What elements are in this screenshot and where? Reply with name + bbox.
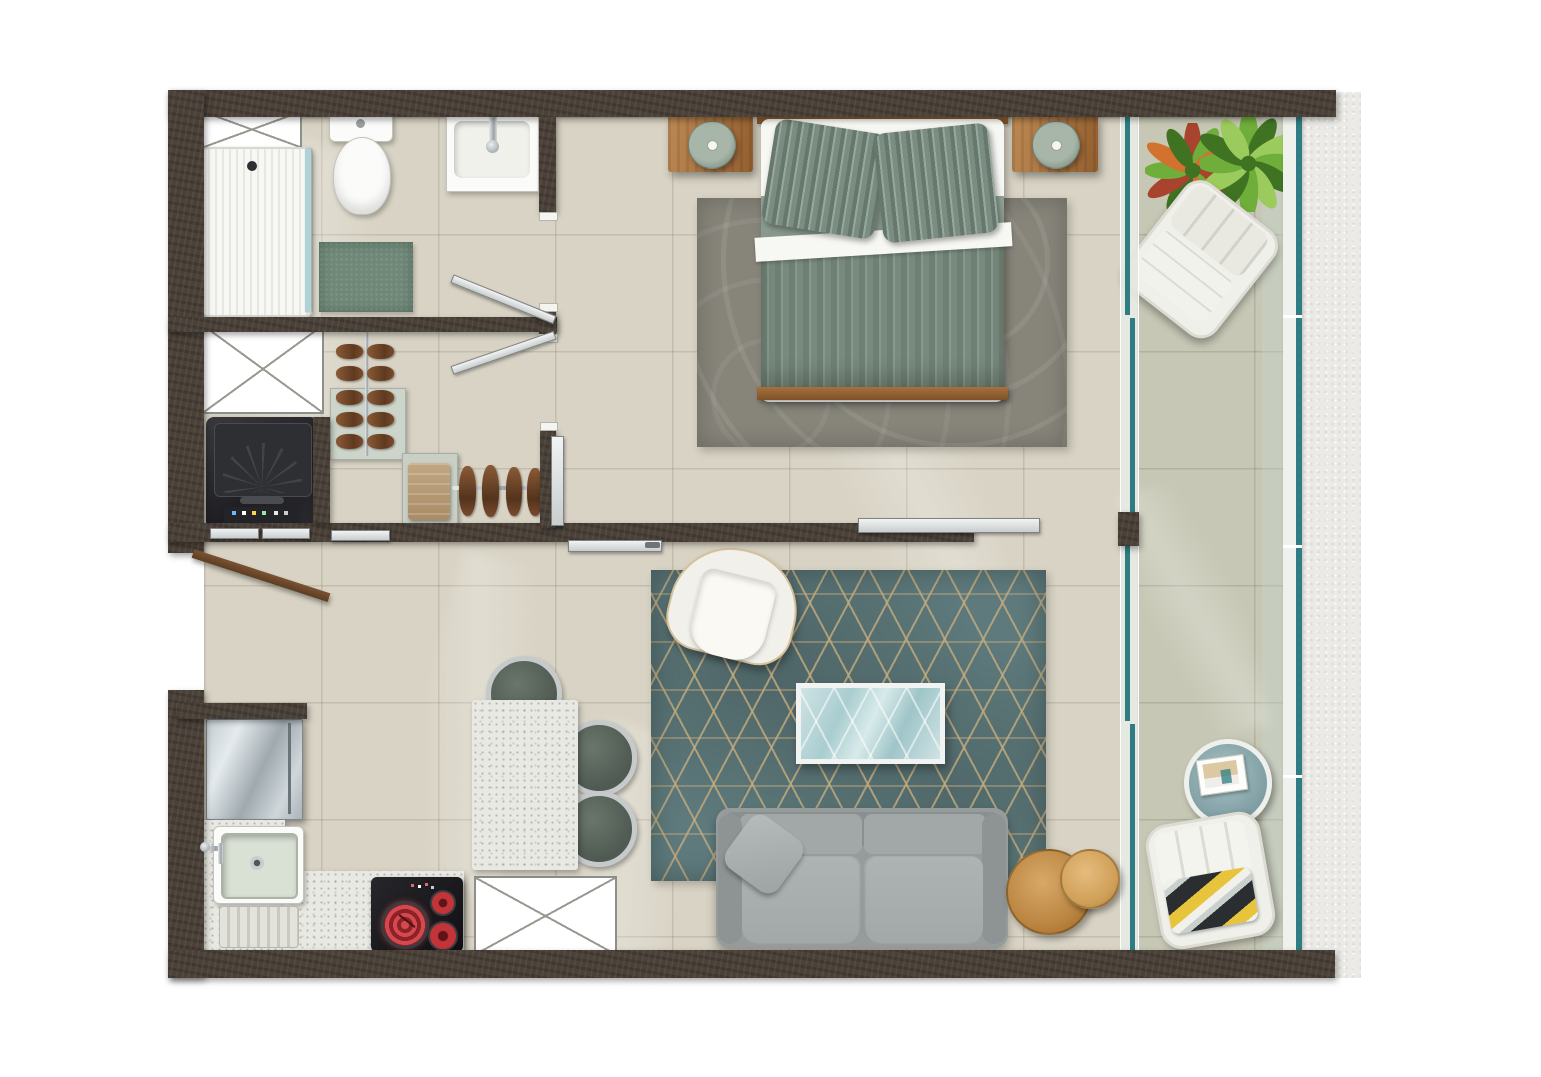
lamp-finial-right	[1051, 140, 1062, 151]
sofa-seat-cushion	[863, 856, 983, 944]
hanging-shoe	[459, 466, 476, 516]
sink-drainboard	[219, 906, 299, 948]
bed-duvet	[761, 244, 1004, 389]
magazine	[1196, 754, 1249, 796]
shower-drain	[247, 161, 257, 171]
nesting-side-table-small	[1060, 849, 1120, 909]
washing-machine	[206, 417, 318, 529]
balustrade-glass-line	[1296, 117, 1302, 950]
shoe	[336, 344, 363, 359]
washer-control-panel	[224, 507, 300, 523]
wall-north	[168, 90, 1336, 117]
bedroom-sliding-door	[858, 518, 1040, 533]
wall-washer-pier	[313, 417, 330, 523]
balustrade-joint	[1283, 775, 1302, 778]
glass-door-panel	[1130, 724, 1135, 950]
closet-sliding-door	[331, 530, 390, 541]
closet-sliding-track-vertical	[551, 436, 564, 526]
shower-glass-panel	[305, 149, 311, 312]
shoe	[367, 412, 394, 427]
towel-stack	[408, 463, 450, 520]
bed-pillow-left	[760, 118, 889, 241]
sofa-back-cushion	[864, 814, 986, 854]
balcony-chair	[1142, 809, 1271, 946]
shoe	[336, 412, 363, 427]
laundry-sliding-door	[262, 528, 310, 539]
wall-bathroom-south	[168, 317, 557, 332]
sofa	[716, 808, 1008, 948]
wall-kitchen-north	[176, 703, 307, 719]
refrigerator-handle	[288, 723, 291, 814]
dining-table	[472, 700, 578, 870]
partition-mullion-block	[1118, 512, 1139, 546]
floor-plan	[0, 0, 1541, 1077]
hanging-shoe	[506, 467, 522, 516]
bed-footboard	[757, 387, 1008, 400]
coffee-table	[796, 683, 945, 764]
wall-west-lower	[168, 690, 204, 978]
balustrade-joint	[1283, 545, 1302, 548]
lamp-finial-left	[707, 140, 718, 151]
shoe	[367, 390, 394, 405]
hall-sliding-door-cap	[645, 542, 660, 548]
magazine-photo-accent	[1220, 769, 1232, 784]
toilet-flush-button	[356, 119, 365, 128]
vanity-faucet-base	[486, 140, 499, 153]
shoe	[336, 434, 363, 449]
closet-storage-box	[202, 324, 324, 414]
hanging-shoe	[482, 465, 499, 517]
kitchen-cabinet-box	[474, 876, 617, 956]
wall-south	[168, 950, 1335, 978]
bed-pillow-right	[873, 122, 1000, 244]
door-jamb	[539, 212, 558, 221]
toilet-bowl	[333, 137, 391, 215]
exterior-stucco-band	[1301, 92, 1361, 978]
sofa-armrest-right	[982, 814, 1006, 944]
door-jamb	[540, 422, 558, 431]
cooktop-burner-small-bottom	[428, 921, 458, 951]
shoe	[336, 390, 363, 405]
cooktop-controls	[411, 884, 414, 887]
bath-mat	[319, 242, 413, 312]
washer-indicator-lights	[232, 511, 236, 515]
shoe	[336, 366, 363, 381]
cooktop-burner-large	[381, 901, 429, 949]
sink-faucet-neck	[218, 843, 223, 864]
shoe	[367, 344, 394, 359]
glass-door-panel	[1125, 117, 1130, 315]
shoe	[367, 434, 394, 449]
wall-bath-bedroom	[539, 117, 556, 212]
sink-faucet-base	[200, 842, 210, 852]
double-bed	[757, 110, 1008, 402]
cooktop	[371, 877, 463, 952]
cooktop-burner-small-top	[430, 890, 456, 916]
laundry-sliding-door	[210, 528, 259, 539]
sink-drain	[250, 856, 264, 870]
shoe	[367, 366, 394, 381]
glass-door-panel	[1125, 545, 1130, 721]
shower-tray	[201, 147, 312, 317]
glass-balustrade	[1283, 117, 1302, 950]
glass-door-panel	[1130, 318, 1135, 512]
balustrade-joint	[1283, 315, 1302, 318]
washer-handle	[240, 497, 284, 504]
